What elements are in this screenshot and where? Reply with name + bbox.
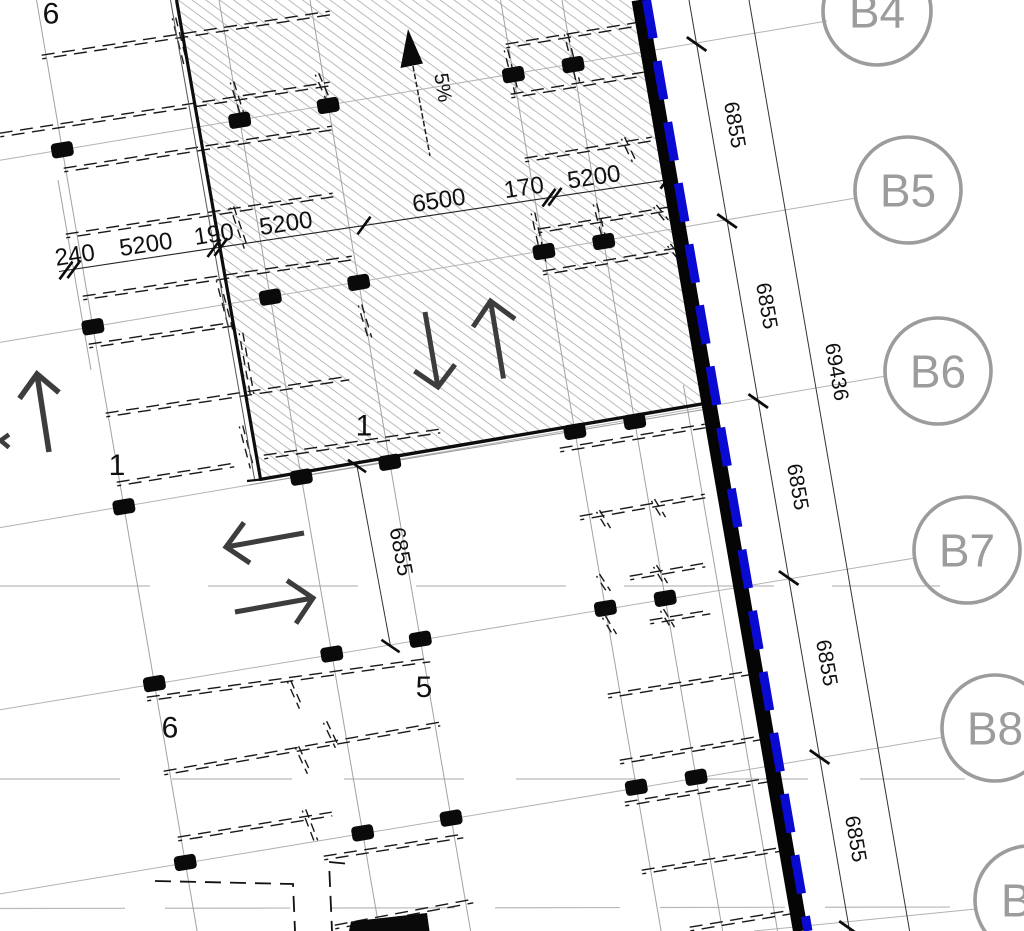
svg-text:B5: B5 <box>880 165 936 217</box>
svg-text:1: 1 <box>356 410 373 443</box>
svg-text:5: 5 <box>416 671 433 704</box>
svg-text:6: 6 <box>43 0 60 31</box>
svg-text:B6: B6 <box>910 346 966 398</box>
svg-text:6: 6 <box>162 712 179 745</box>
svg-text:B9: B9 <box>1001 875 1024 927</box>
svg-text:1: 1 <box>109 449 126 482</box>
svg-text:B4: B4 <box>849 0 905 38</box>
svg-text:5%: 5% <box>429 72 455 104</box>
svg-text:B8: B8 <box>967 703 1023 755</box>
svg-text:B7: B7 <box>939 525 995 577</box>
